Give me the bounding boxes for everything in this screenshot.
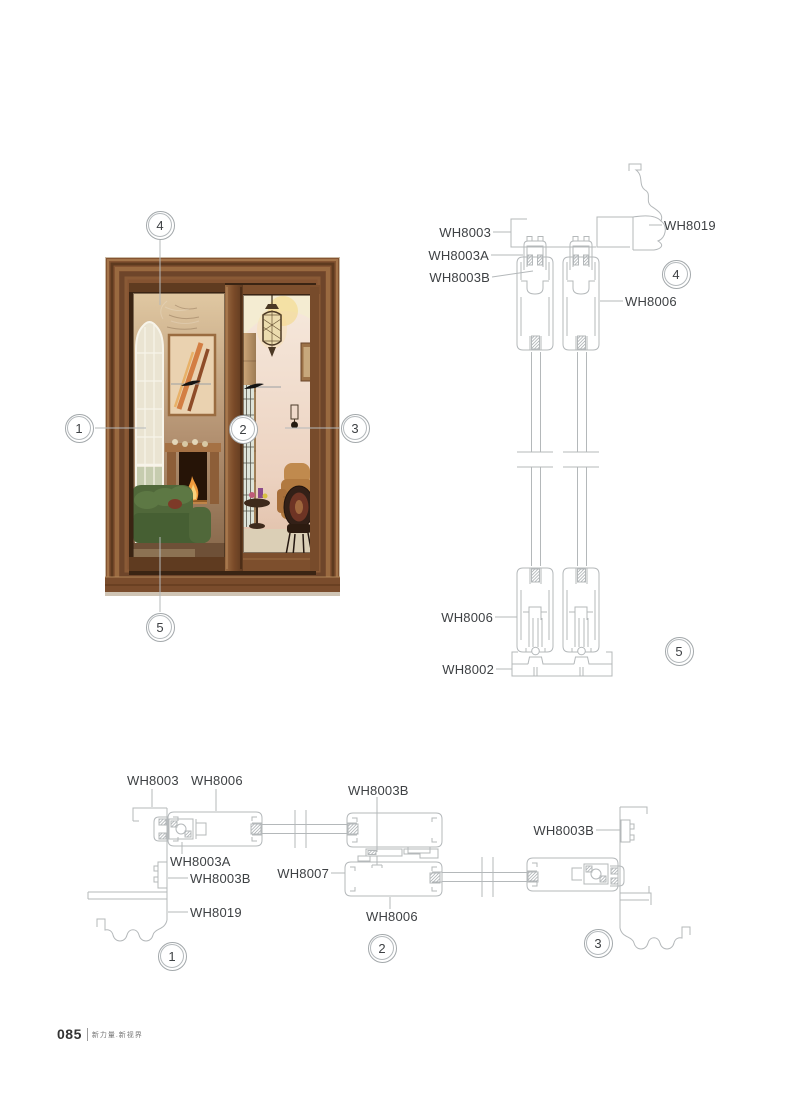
- horizontal-section-callout-2: 2: [368, 934, 397, 963]
- horizontal-section-drawing: [88, 807, 690, 949]
- page-number: 085: [57, 1026, 82, 1042]
- vertical-section-callout-4: 4: [662, 260, 691, 289]
- footer-divider: [87, 1028, 88, 1041]
- label-hs-cover-left: WH8019: [190, 906, 242, 920]
- horizontal-section-callout-1: 1: [158, 942, 187, 971]
- page-footer: 085 新力量.新视界: [57, 1026, 143, 1042]
- label-vs-sill: WH8002: [442, 663, 494, 677]
- label-hs-clip-right: WH8003B: [533, 824, 594, 838]
- catalog-page: 4 1 2 3 5 4 5 1 2 3 WH8003 WH8003A WH800…: [0, 0, 800, 1093]
- door-callout-2: 2: [229, 415, 258, 444]
- vertical-section-drawing: [511, 164, 665, 676]
- horizontal-section-callout-3: 3: [584, 929, 613, 958]
- label-vs-head-frame: WH8003: [439, 226, 491, 240]
- label-vs-top-guide: WH8003A: [428, 249, 489, 263]
- label-vs-rail-top: WH8006: [625, 295, 677, 309]
- door-callout-3: 3: [341, 414, 370, 443]
- label-hs-adapter: WH8007: [277, 867, 329, 881]
- vertical-section-callout-5: 5: [665, 637, 694, 666]
- door-callout-4: 4: [146, 211, 175, 240]
- label-hs-clip-mid: WH8003B: [348, 784, 409, 798]
- door-product-photo: [105, 257, 340, 598]
- label-hs-clip-left: WH8003B: [190, 872, 251, 886]
- label-hs-jamb: WH8003: [127, 774, 179, 788]
- label-vs-guide-clip: WH8003B: [429, 271, 490, 285]
- footer-tagline: 新力量.新视界: [92, 1028, 143, 1040]
- door-photo-art: [105, 257, 340, 598]
- label-vs-rail-bottom: WH8006: [441, 611, 493, 625]
- label-hs-rail-mid: WH8006: [366, 910, 418, 924]
- door-callout-1: 1: [65, 414, 94, 443]
- label-hs-rail-left: WH8006: [191, 774, 243, 788]
- label-hs-lock: WH8003A: [170, 855, 231, 869]
- label-vs-cover: WH8019: [664, 219, 716, 233]
- door-callout-5: 5: [146, 613, 175, 642]
